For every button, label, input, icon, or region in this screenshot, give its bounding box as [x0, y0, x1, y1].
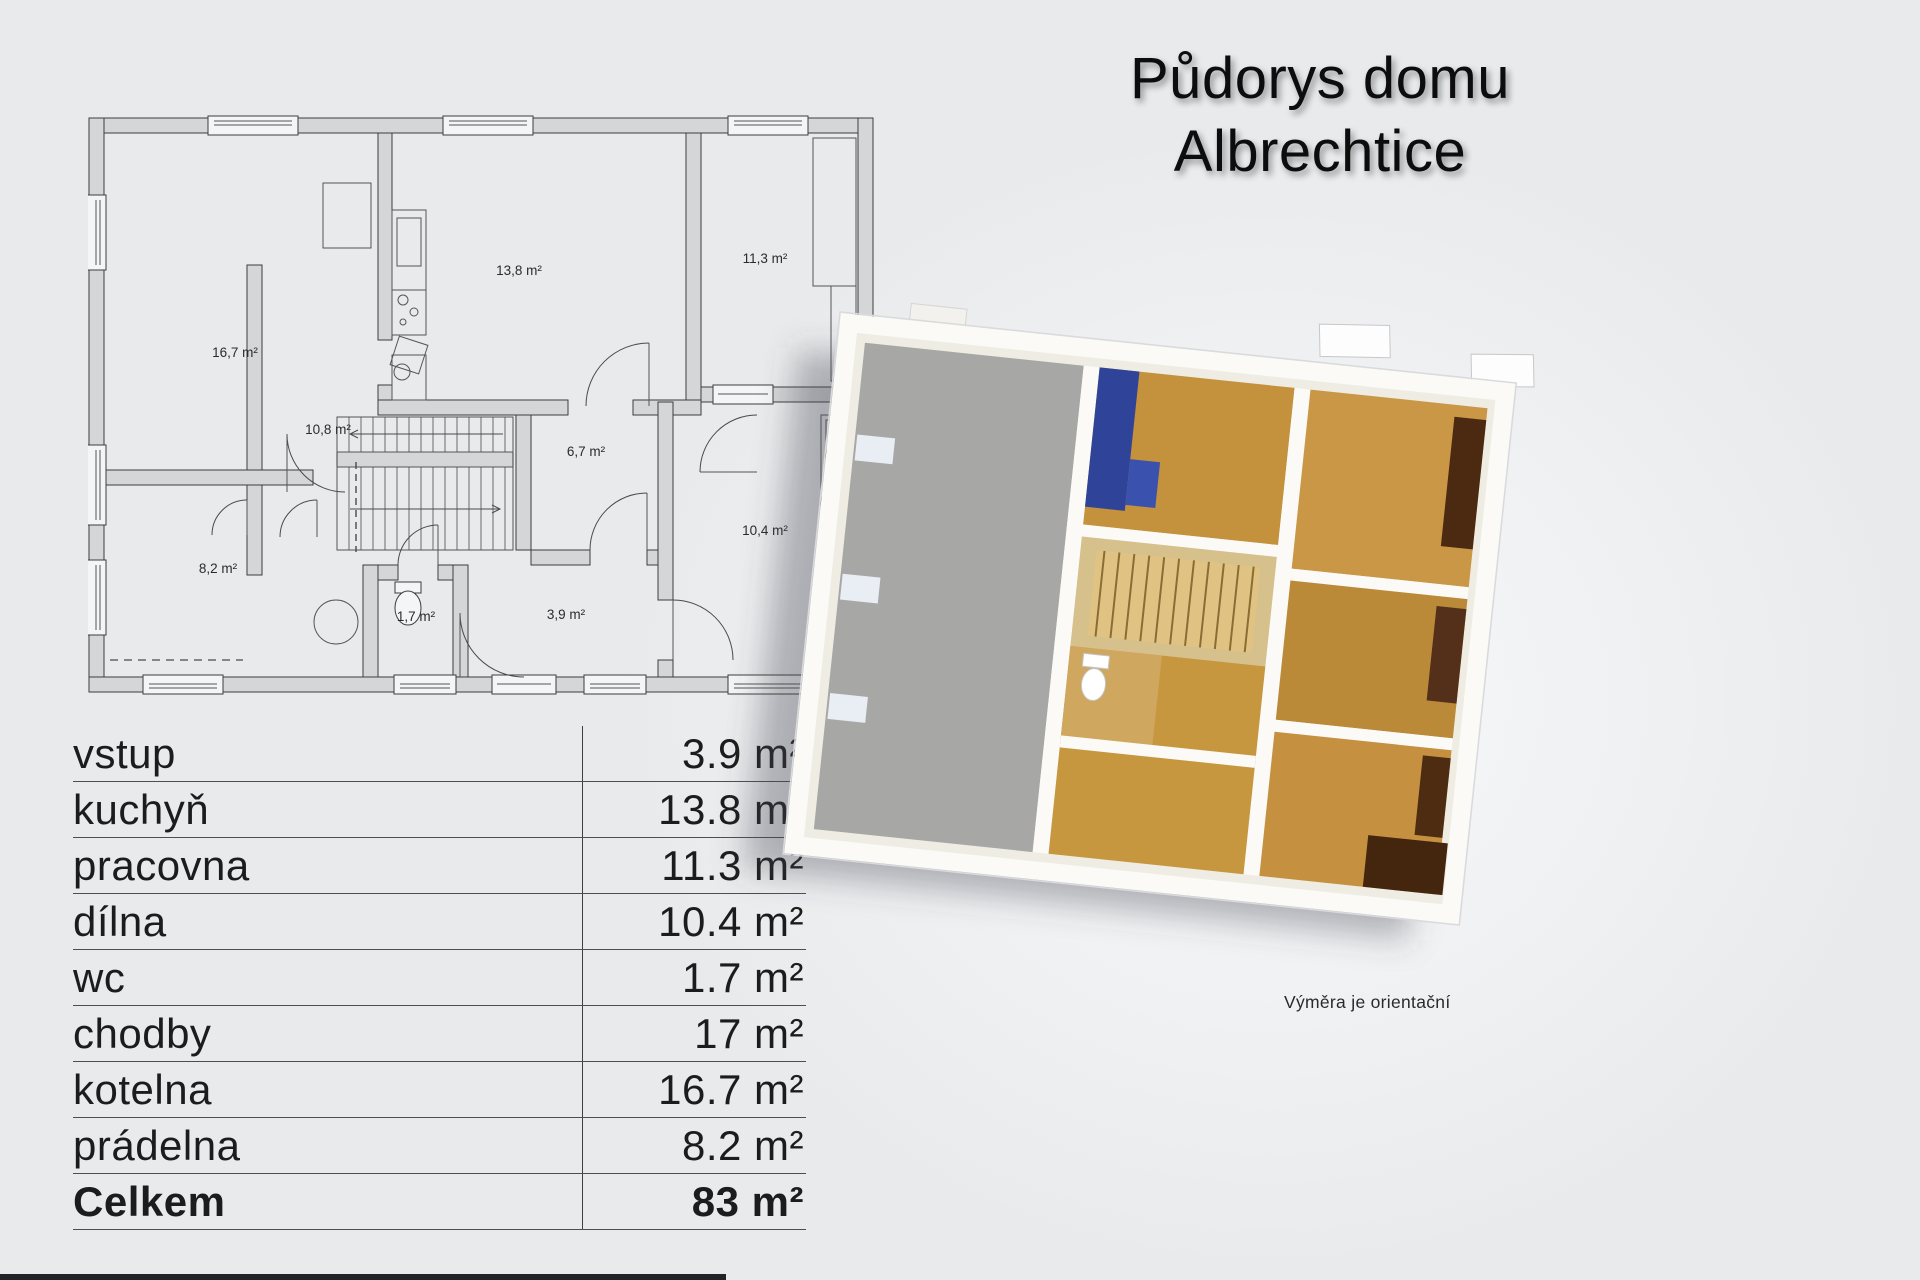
house-3d	[743, 264, 1539, 946]
window-top-3	[728, 116, 808, 135]
door-vstup	[460, 613, 524, 677]
window-top-1	[208, 116, 298, 135]
door-corridor	[280, 500, 317, 537]
row-label: wc	[73, 950, 583, 1005]
door-symbol-entry	[492, 675, 556, 694]
window-bottom-3	[584, 675, 646, 694]
floor-plan-3d-render	[690, 225, 1570, 1025]
window-left-3	[88, 560, 106, 635]
row-value: 8.2 m²	[583, 1122, 806, 1170]
label-wc: 1,7 m²	[397, 609, 436, 624]
row-label: prádelna	[73, 1118, 583, 1173]
page-title: Půdorys domu Albrechtice	[1020, 42, 1620, 188]
total-label: Celkem	[73, 1174, 583, 1229]
total-value: 83 m²	[583, 1178, 806, 1226]
light-patch-1	[855, 434, 896, 464]
light-patch-3	[827, 693, 868, 723]
table-row-total: Celkem83 m²	[73, 1174, 806, 1230]
title-line-2: Albrechtice	[1020, 115, 1620, 188]
label-pradelna: 8,2 m²	[199, 561, 238, 576]
door-arcs	[212, 343, 757, 677]
kitchen-desk-blue	[1125, 459, 1160, 508]
window-bottom-2	[394, 675, 456, 694]
bottom-bar	[0, 1274, 726, 1280]
window-left-1	[88, 195, 106, 270]
door-chodba	[590, 493, 647, 550]
stairs-3d	[1088, 550, 1261, 653]
stairs	[337, 417, 513, 552]
row-label: kotelna	[73, 1062, 583, 1117]
cabinet-bottom-right	[1363, 835, 1448, 895]
row-value: 16.7 m²	[583, 1066, 806, 1114]
footnote: Výměra je orientační	[1284, 992, 1451, 1013]
kitchen-unit	[390, 210, 428, 400]
label-vstup: 3,9 m²	[547, 607, 586, 622]
row-label: vstup	[73, 726, 583, 781]
row-label: pracovna	[73, 838, 583, 893]
label-kotelna: 16,7 m²	[212, 345, 258, 360]
door-pradelna	[212, 500, 247, 535]
label-chodba-schodiste: 10,8 m²	[305, 422, 351, 437]
window-left-2	[88, 445, 106, 525]
boiler-box	[323, 183, 371, 248]
door-kitchen	[586, 343, 649, 406]
row-label: dílna	[73, 894, 583, 949]
floor-plan-3d-svg	[690, 225, 1570, 1025]
stair-arrow-down	[350, 505, 500, 513]
window-bottom-1	[143, 675, 223, 694]
table-row: prádelna8.2 m²	[73, 1118, 806, 1174]
label-kuchyn: 13,8 m²	[496, 263, 542, 278]
window-top-2	[443, 116, 533, 135]
row-label: chodby	[73, 1006, 583, 1061]
title-line-1: Půdorys domu	[1020, 42, 1620, 115]
label-chodba: 6,7 m²	[567, 444, 606, 459]
door-wc	[398, 525, 438, 565]
light-patch-2	[840, 574, 881, 604]
wc-floor	[1060, 646, 1162, 751]
row-label: kuchyň	[73, 782, 583, 837]
table-row: kotelna16.7 m²	[73, 1062, 806, 1118]
boiler-circle	[314, 600, 358, 644]
